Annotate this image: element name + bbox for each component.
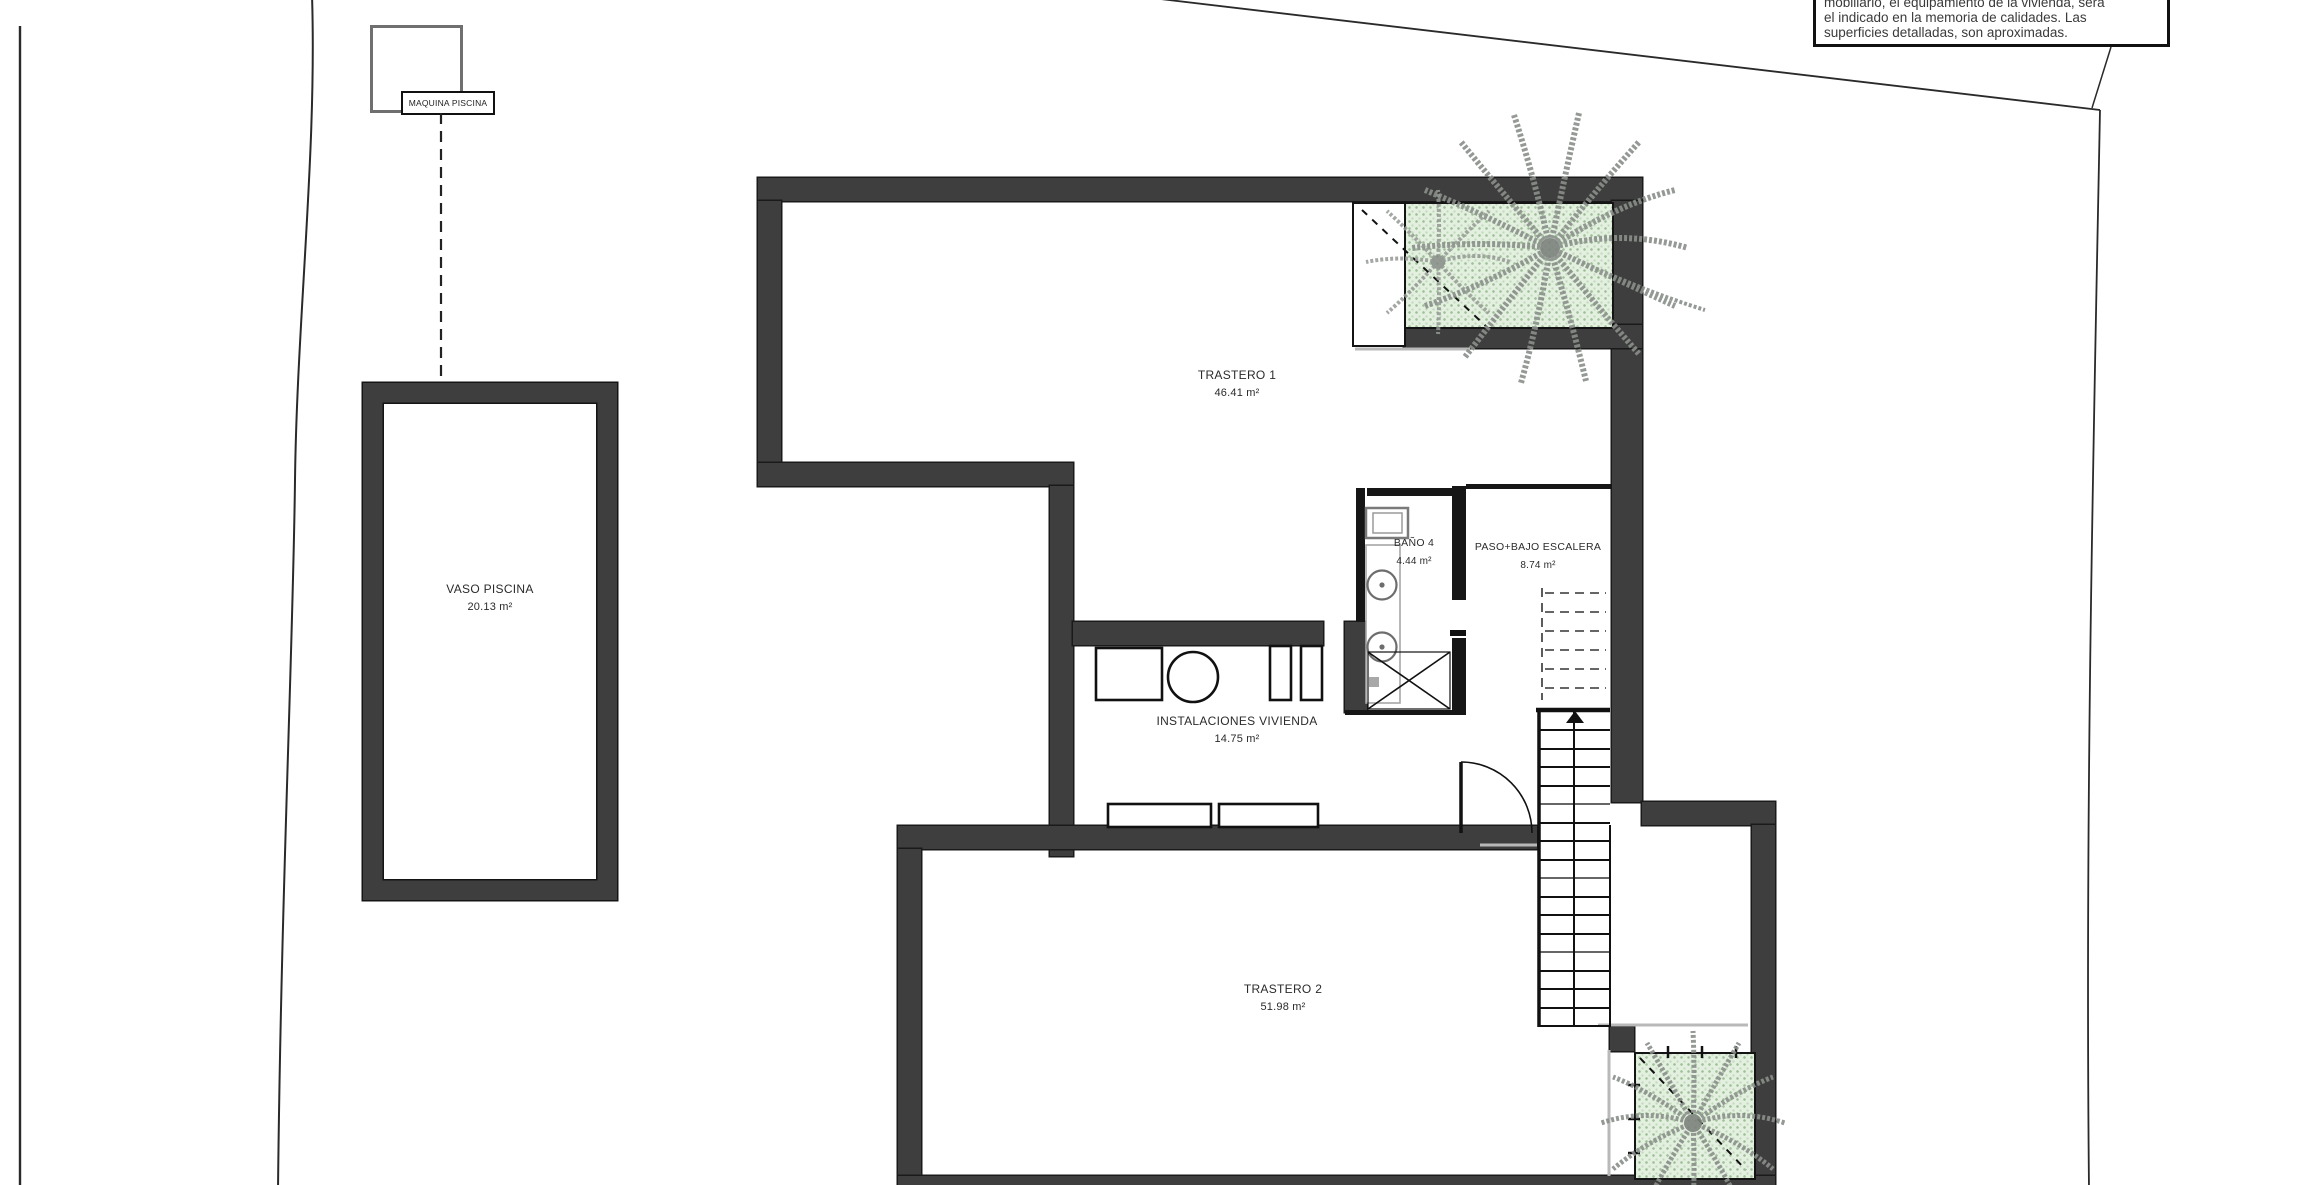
palm-tree-small-icon — [1366, 190, 1510, 334]
note-leader-line — [2092, 47, 2111, 108]
room-label-instalaciones: INSTALACIONES VIVIENDA 14.75 m² — [1156, 712, 1317, 748]
bench-2 — [1219, 804, 1318, 827]
stairs-solid-flight — [1536, 710, 1610, 1027]
equipment-unit-1 — [1270, 646, 1291, 700]
bench-1 — [1108, 804, 1211, 827]
room-label-trastero-1: TRASTERO 1 46.41 m² — [1198, 366, 1276, 402]
bath-door-stop — [1450, 630, 1466, 636]
floor-plan-canvas: MAQUINA PISCINA mobiliario, el equipamie… — [0, 0, 2304, 1185]
room-label-bano-4: BAÑO 4 4.44 m² — [1394, 534, 1434, 570]
room-label-paso-escalera: PASO+BAJO ESCALERA 8.74 m² — [1475, 538, 1601, 574]
water-tank-icon — [1168, 652, 1218, 702]
boundary-left-curve — [278, 0, 313, 1185]
entry-door — [1461, 762, 1532, 833]
room-label-trastero-2: TRASTERO 2 51.98 m² — [1244, 980, 1322, 1016]
door-swing-arc — [1461, 762, 1532, 833]
stairs-dashed-flight — [1542, 588, 1606, 700]
plan-linework — [0, 0, 2304, 1185]
equipment-unit-2 — [1301, 646, 1322, 700]
room-label-vaso-piscina: VASO PISCINA 20.13 m² — [446, 580, 533, 616]
palm-tree-top-icon — [1412, 113, 1705, 383]
equipment-box-icon — [1096, 648, 1162, 700]
stairs-up-arrow-icon — [1566, 711, 1584, 723]
boundary-right — [2088, 110, 2100, 1185]
boundary-top-diagonal — [1152, 0, 2100, 110]
palm-tree-bottom-icon — [1601, 1031, 1785, 1185]
